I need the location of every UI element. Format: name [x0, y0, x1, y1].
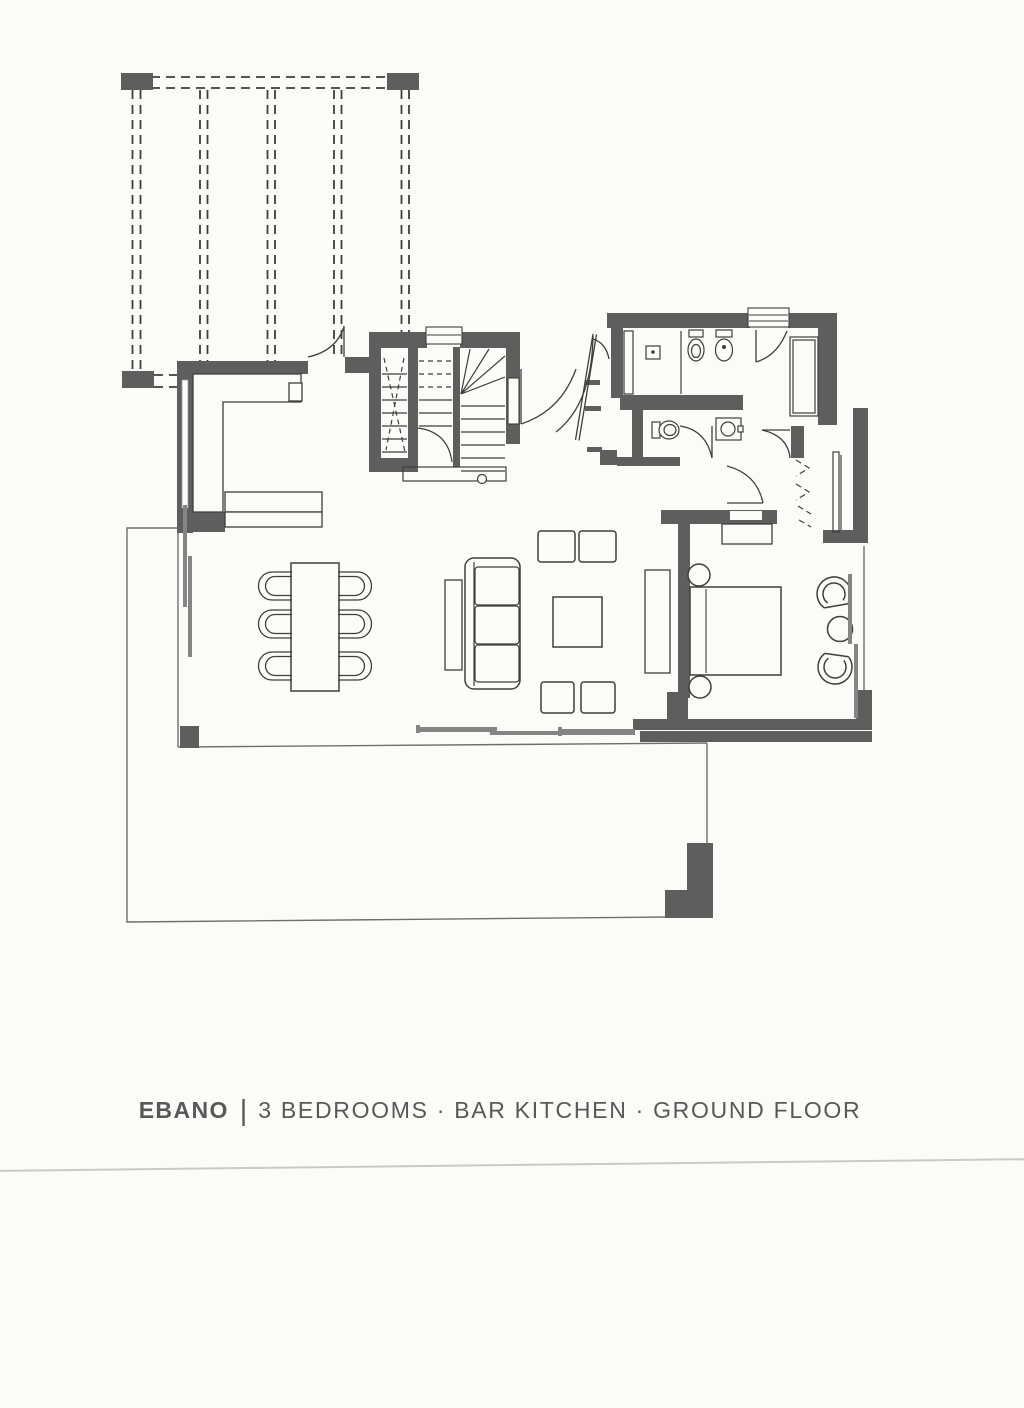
bathrooms — [624, 330, 818, 440]
dining-chair — [259, 652, 293, 680]
partition-wall-opening — [730, 511, 762, 520]
interior-floor-edge — [178, 743, 707, 747]
terrace-boundary — [127, 528, 665, 922]
sliding-track — [183, 505, 187, 607]
bathroom-window — [748, 308, 789, 327]
caption-description: 3 BEDROOMS · BAR KITCHEN · GROUND FLOOR — [258, 1097, 861, 1124]
tub-chair — [817, 577, 851, 608]
bathroom-door-swing — [756, 331, 787, 362]
stair-footprint-outline — [403, 467, 506, 481]
kitchen-door-swing — [308, 327, 344, 357]
sliding-track — [418, 727, 497, 732]
stair-flight-mid-treads — [419, 400, 452, 426]
kitchen-top-wall — [177, 361, 308, 374]
closet-bottom-wall — [823, 530, 868, 543]
terrace-step-lower — [665, 890, 713, 918]
stair-winder-fan — [461, 349, 505, 394]
nightstand — [689, 676, 711, 698]
stair-top-wall-left — [373, 332, 427, 348]
bar-counter-top — [225, 492, 322, 512]
bar-counter-front — [225, 512, 322, 527]
stair-newel-post — [478, 475, 487, 484]
stair-flight-left-treads — [382, 374, 407, 452]
bedroom — [688, 524, 781, 698]
living-room — [445, 531, 670, 713]
scanned-floor-plan-page: EBANO | 3 BEDROOMS · BAR KITCHEN · GROUN… — [0, 0, 1024, 1408]
pillar-bottom-left — [122, 371, 154, 388]
wc-washbasin-bowl — [721, 422, 735, 436]
pergola-beam-4 — [334, 90, 342, 357]
east-wall — [853, 408, 868, 543]
dining-chair — [259, 572, 293, 600]
sliding-track-endcap — [416, 725, 420, 733]
pouf — [538, 531, 575, 562]
terrace-step-upper — [687, 843, 713, 891]
pergola-beam-2 — [200, 90, 208, 361]
tv-cabinet — [645, 570, 670, 673]
hall-wall-stub — [600, 450, 617, 465]
stair-under-door-arc — [418, 428, 452, 462]
caption-project-name: EBANO — [139, 1097, 229, 1124]
dining-chair — [338, 572, 372, 600]
bathroom-wc-divider-wall — [620, 395, 743, 410]
wc-washbasin-tap — [738, 426, 743, 432]
bedroom-se-pillar — [856, 690, 872, 728]
closet-door-stub — [791, 426, 804, 458]
wardrobe-side-panel — [833, 452, 839, 532]
hall-door-swing — [521, 369, 576, 424]
kitchen-wall-door-pocket — [182, 380, 188, 508]
stair-flight-mid-treads-dashed — [419, 361, 452, 387]
stair-flight-left-guides — [384, 358, 405, 452]
toilet-bowl-inner — [692, 345, 701, 358]
wc-left-wall — [632, 410, 643, 463]
sliding-track-endcap — [558, 727, 562, 736]
dining-set — [259, 563, 372, 691]
bidet-bowl — [716, 339, 733, 361]
stair-top-wall-right — [460, 332, 520, 348]
wc-bottom-wall — [617, 457, 680, 466]
sofa-cushion — [475, 606, 519, 644]
bidet-tank — [716, 330, 732, 337]
south-wall-band-upper — [633, 719, 872, 730]
bedroom-left-wall — [678, 524, 690, 698]
stair-banister-wall-1 — [408, 347, 418, 467]
sliding-track — [188, 556, 192, 657]
bidet-dot — [722, 345, 726, 349]
sofa-cushion — [475, 567, 519, 605]
coffee-table — [553, 597, 602, 647]
sliding-track — [848, 574, 852, 644]
dining-table — [291, 563, 339, 691]
kitchen — [193, 374, 322, 527]
wardrobe — [796, 452, 841, 532]
shower-tray — [793, 340, 815, 413]
dresser — [722, 524, 772, 544]
sofa-side-table — [445, 580, 462, 670]
pergola-top-edge — [136, 77, 414, 88]
wc-toilet-bowl-inner — [664, 425, 676, 436]
closet-door-swing — [762, 430, 790, 458]
pergola-beam-5 — [402, 90, 410, 332]
south-wall-band-lower — [640, 731, 872, 742]
bathroom-vanity — [624, 331, 633, 394]
stair-wall-niche — [508, 378, 519, 424]
pergola-beam-3 — [268, 90, 276, 361]
dining-chair — [338, 610, 372, 638]
caption-separator: | — [240, 1095, 248, 1128]
pergola-beam-1 — [133, 90, 141, 371]
dining-chair — [338, 652, 372, 680]
stair-bottom-wall — [380, 458, 418, 472]
toilet-tank — [689, 330, 703, 337]
pergola-bottom-edge — [154, 375, 180, 387]
pouf — [581, 682, 615, 713]
pouf — [579, 531, 616, 562]
dining-chair — [259, 610, 293, 638]
entry-jamb-mark-2 — [585, 406, 601, 411]
bedroom-door-swing — [727, 466, 763, 503]
sliding-track — [490, 731, 560, 735]
kitchen-sink — [289, 383, 302, 401]
stair-flight-right-treads — [461, 406, 505, 471]
terrace-seating — [817, 577, 852, 684]
sliding-track — [854, 644, 858, 718]
bathroom-left-wall — [611, 328, 623, 398]
pouf — [541, 682, 574, 713]
pillar-top-left — [121, 73, 153, 90]
bathroom-top-wall-left — [607, 313, 750, 328]
entry-jamb-mark-3 — [587, 447, 602, 452]
pillar-top-right — [387, 73, 419, 90]
floor-drain-dot — [651, 350, 655, 354]
wc-door-swing — [680, 426, 712, 458]
sofa-cushion — [475, 645, 519, 682]
plan-caption: EBANO | 3 BEDROOMS · BAR KITCHEN · GROUN… — [0, 1093, 1012, 1126]
floor-plan-drawing — [0, 0, 1024, 1408]
living-sw-pillar — [180, 726, 199, 748]
folding-door-symbol — [796, 460, 811, 527]
nightstand — [688, 564, 710, 586]
stair-banister-wall-2 — [453, 347, 460, 467]
tub-chair — [818, 653, 852, 684]
kitchen-counter — [193, 374, 301, 512]
sliding-track — [560, 729, 635, 735]
double-bed — [690, 587, 781, 675]
stair-left-wall — [369, 332, 381, 472]
